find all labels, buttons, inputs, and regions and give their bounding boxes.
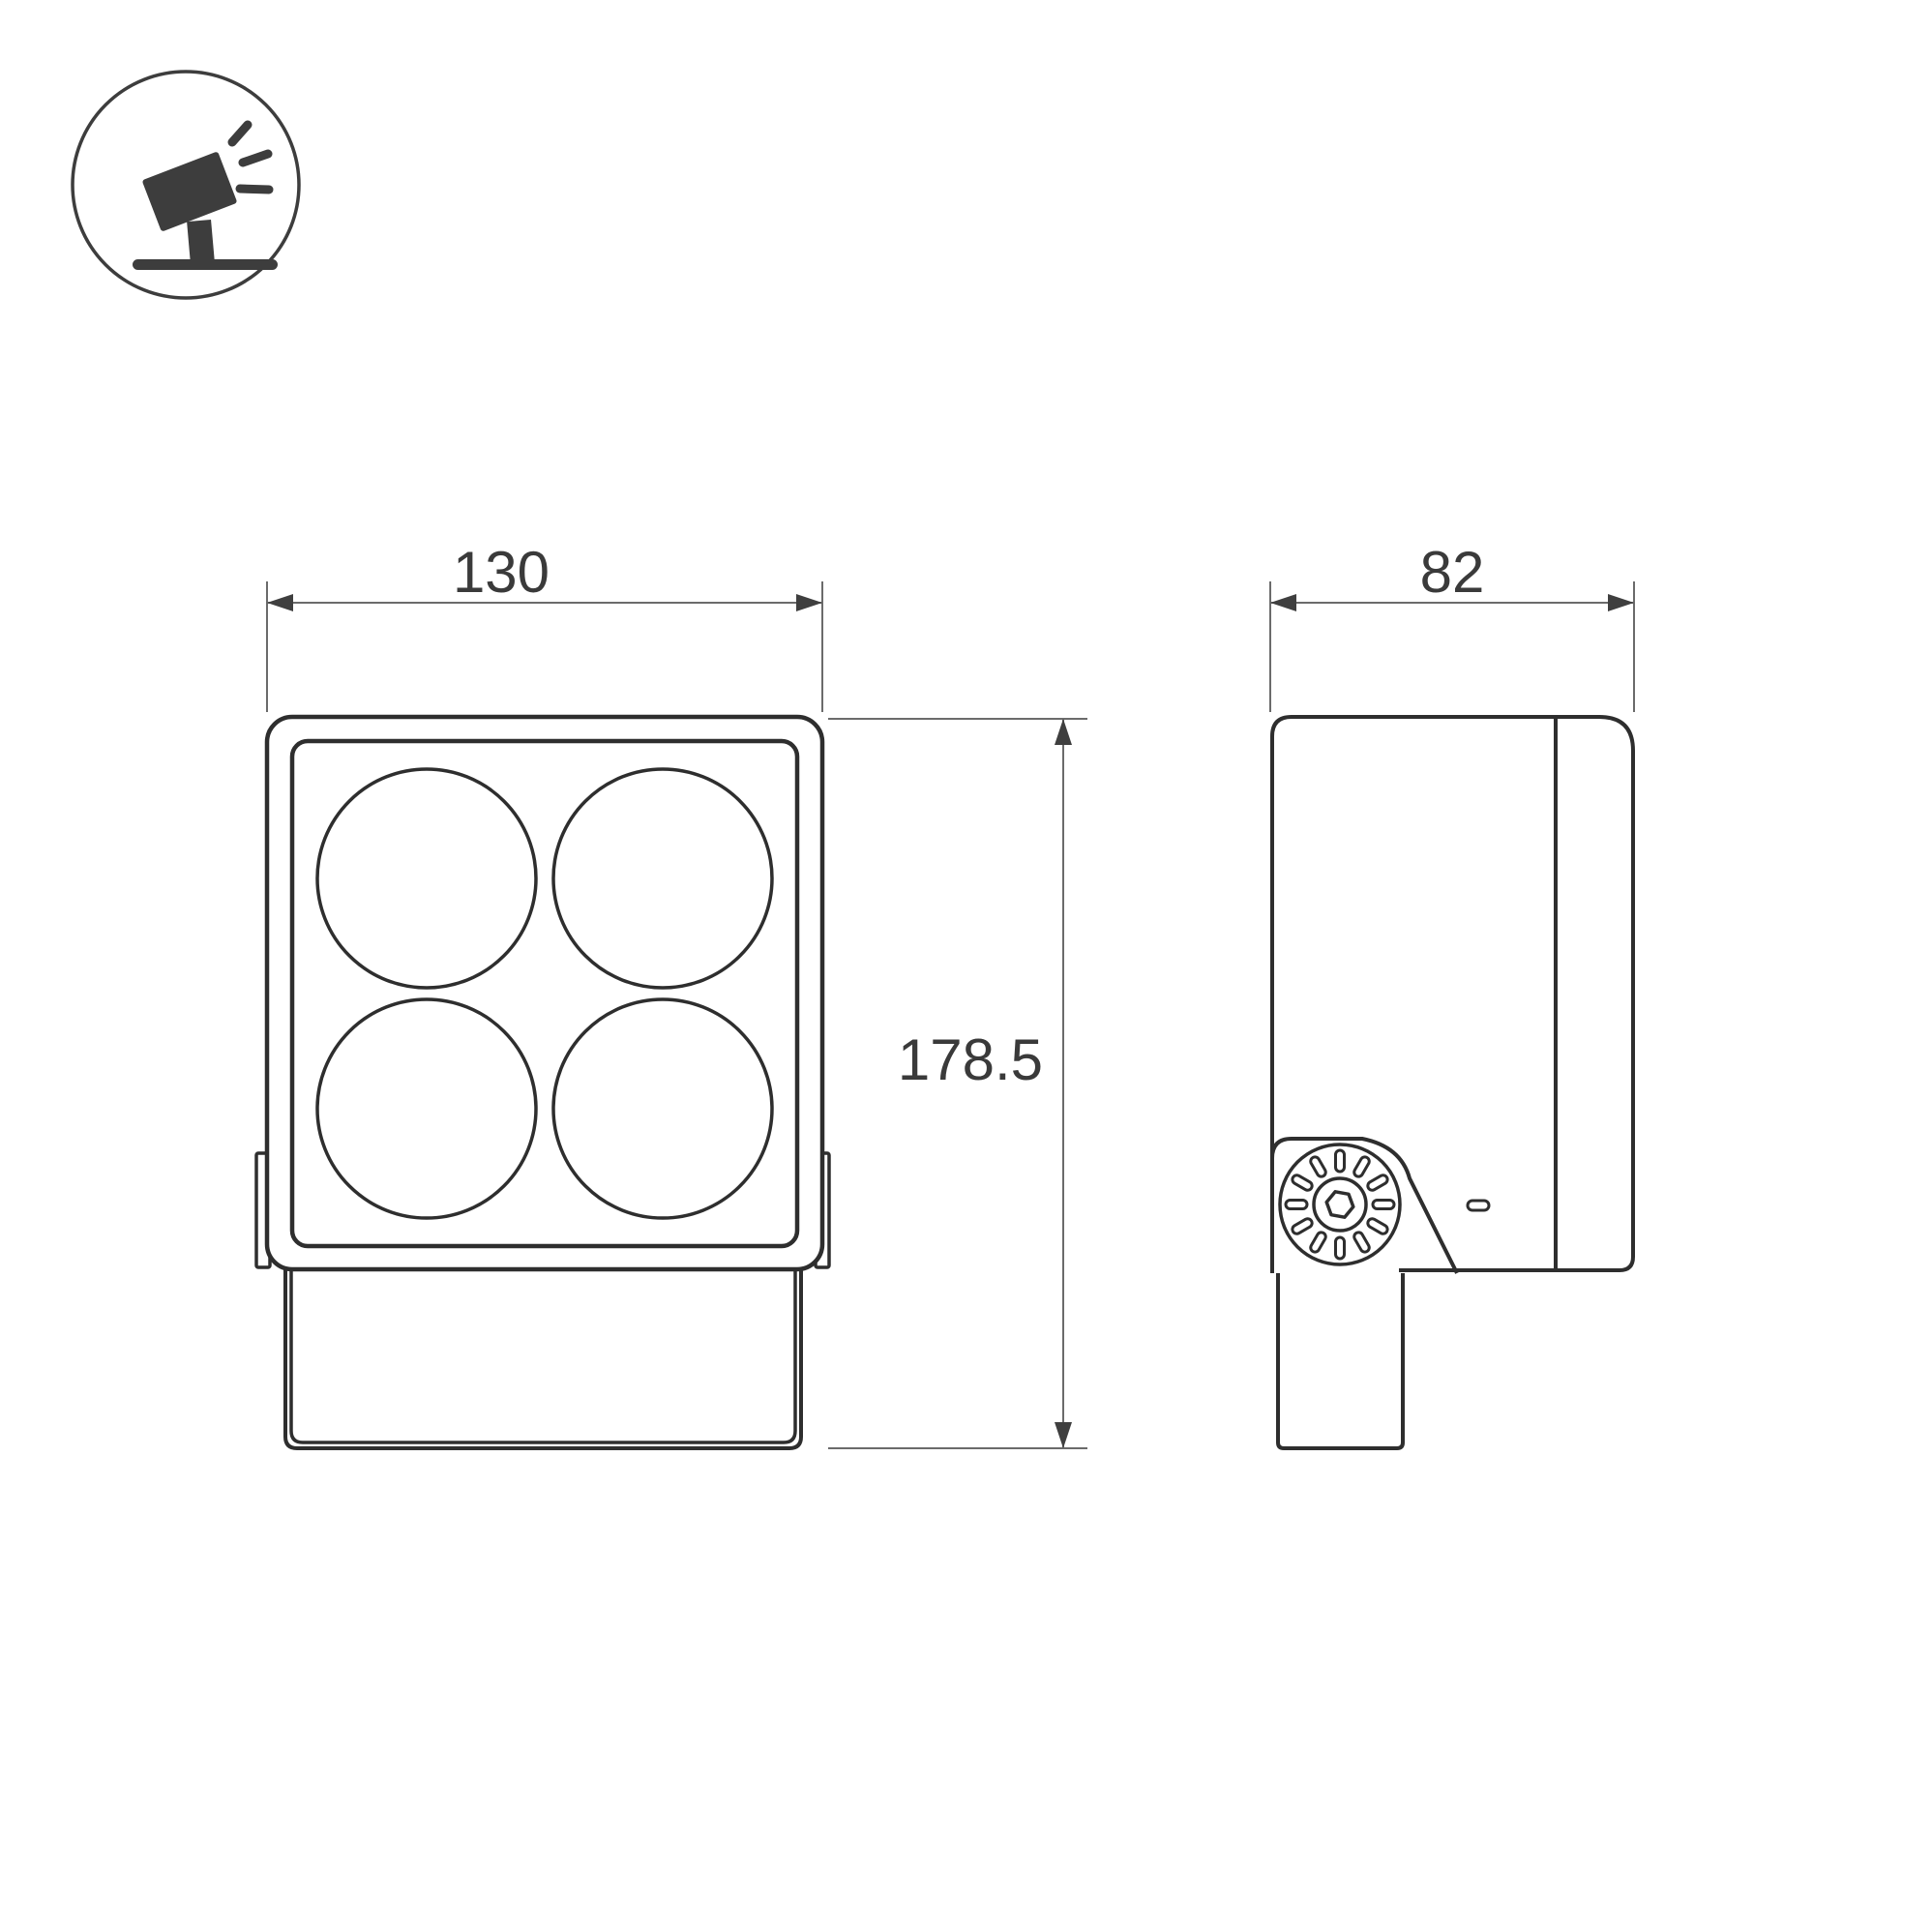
floodlight-dimension-drawing: 130 178.5 82: [0, 0, 1932, 1932]
icon-ray-top: [232, 125, 248, 142]
dim-width-label: 130: [453, 540, 550, 605]
dim-height-arrow-bottom: [1055, 1422, 1072, 1448]
front-view: [256, 717, 829, 1448]
icon-floodlight-body: [133, 151, 278, 270]
knob-hex-socket-icon: [1326, 1192, 1353, 1217]
technical-drawing-page: 130 178.5 82: [0, 0, 1932, 1932]
side-view: [1272, 717, 1633, 1448]
icon-ray-bottom: [240, 189, 269, 190]
front-bracket-plate-outer: [285, 1263, 801, 1448]
icon-ray-middle: [243, 154, 268, 163]
side-adjustment-knob: [1280, 1144, 1400, 1264]
dim-height-arrow-top: [1055, 719, 1072, 745]
side-mounting-stem: [1278, 1258, 1403, 1448]
dim-width-arrow-left: [267, 594, 293, 611]
icon-ground-base: [133, 259, 278, 270]
dim-depth-arrow-left: [1270, 594, 1296, 611]
side-body-slot: [1468, 1201, 1489, 1210]
dim-depth-arrow-right: [1608, 594, 1634, 611]
dimension-front-width: 130: [267, 540, 822, 712]
dim-height-label: 178.5: [898, 1027, 1043, 1092]
icon-lamp-pole: [187, 220, 215, 264]
dimension-side-depth: 82: [1270, 540, 1634, 712]
tilted-floodlight-on-ground-icon: [73, 72, 299, 298]
icon-light-rays: [232, 125, 269, 190]
dim-depth-label: 82: [1420, 540, 1485, 605]
dim-width-arrow-right: [796, 594, 822, 611]
dimension-overall-height: 178.5: [828, 719, 1087, 1448]
icon-lamp-head: [142, 151, 238, 231]
